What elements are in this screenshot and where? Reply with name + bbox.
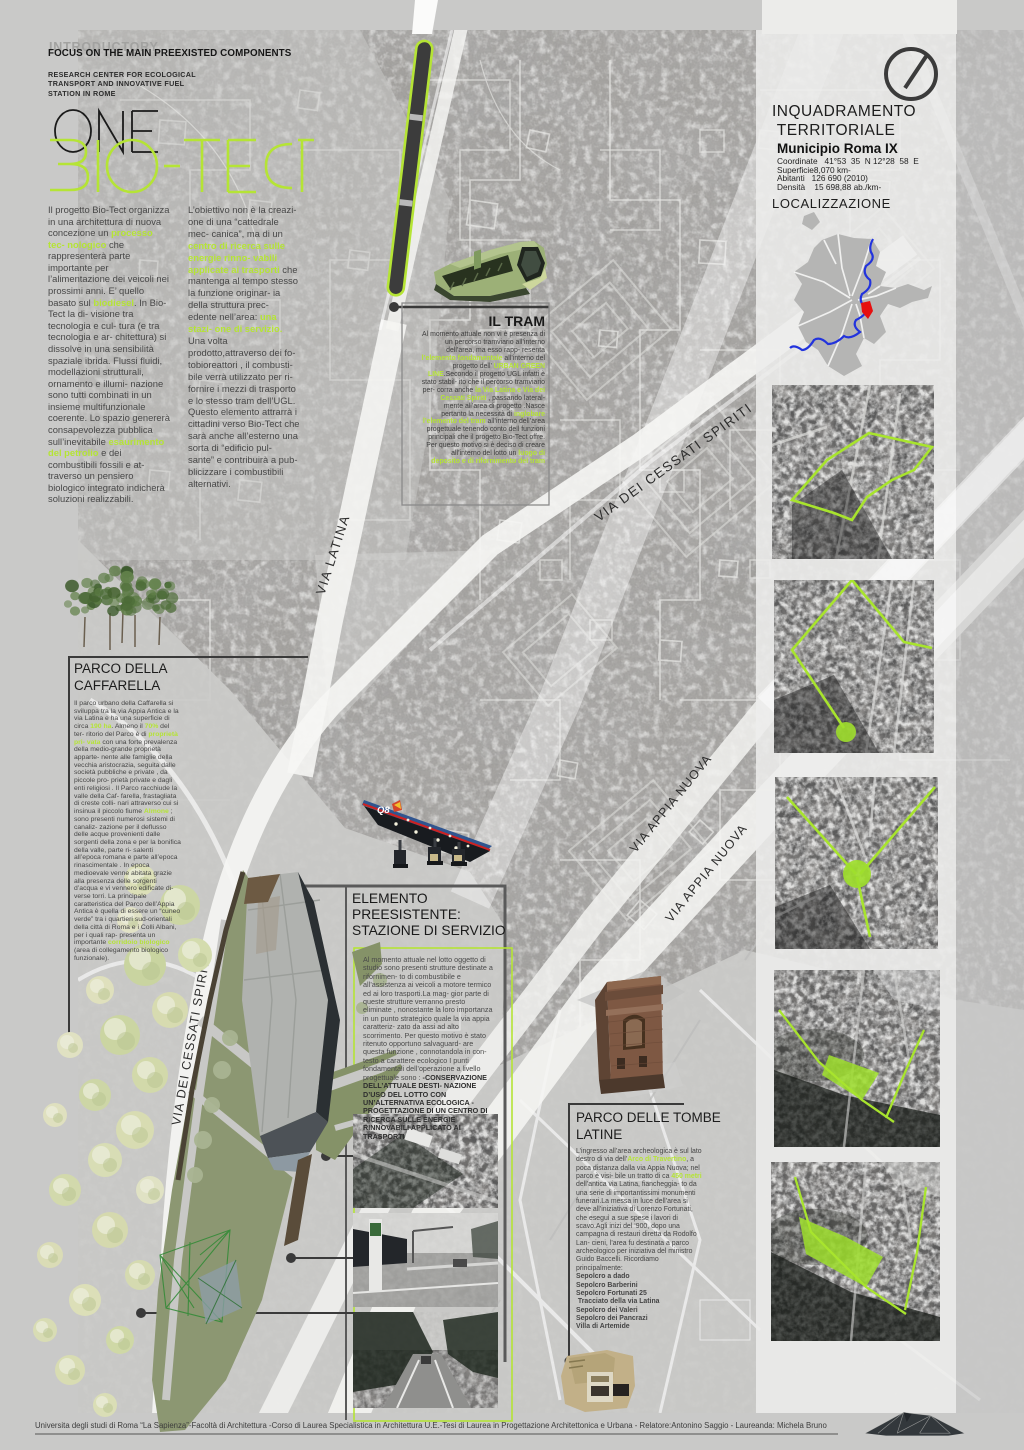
svg-text:Q8: Q8 — [377, 805, 390, 816]
